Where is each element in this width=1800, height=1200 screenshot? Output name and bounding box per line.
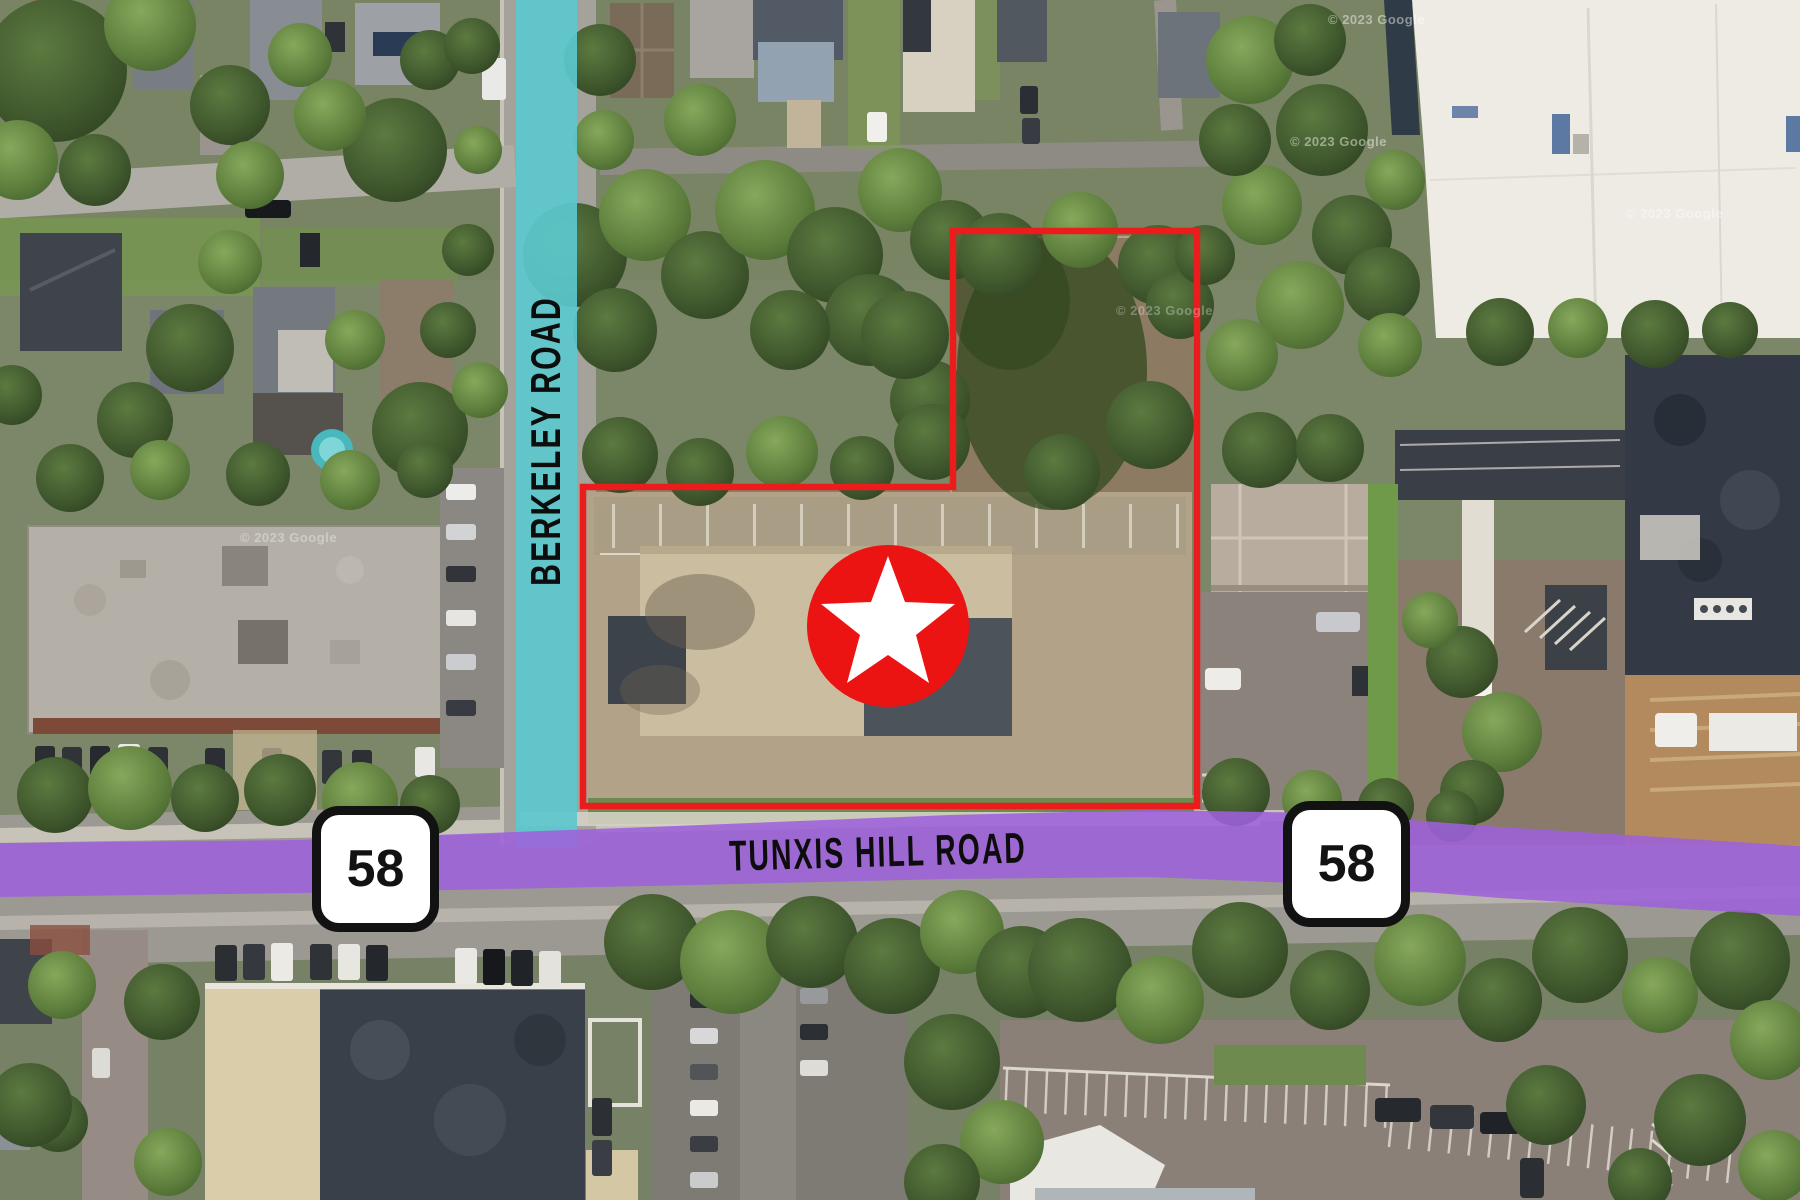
route-shield-left-number: 58 — [347, 839, 405, 899]
road-label-berkeley: BERKELEY ROAD — [522, 296, 570, 586]
satellite-background — [0, 0, 1800, 1200]
road-label-tunxis: TUNXIS HILL ROAD — [729, 824, 1028, 881]
route-shield-58-right: 58 — [1283, 801, 1410, 927]
google-watermark: © 2023 Google — [1626, 206, 1723, 221]
annotated-aerial-map: BERKELEY ROAD TUNXIS HILL ROAD 58 58 © 2… — [0, 0, 1800, 1200]
google-watermark: © 2023 Google — [1290, 134, 1387, 149]
google-watermark: © 2023 Google — [1328, 12, 1425, 27]
route-shield-right-number: 58 — [1318, 834, 1376, 894]
location-marker — [807, 545, 969, 707]
route-shield-58-left: 58 — [312, 806, 439, 932]
google-watermark: © 2023 Google — [240, 530, 337, 545]
google-watermark: © 2023 Google — [1116, 303, 1213, 318]
